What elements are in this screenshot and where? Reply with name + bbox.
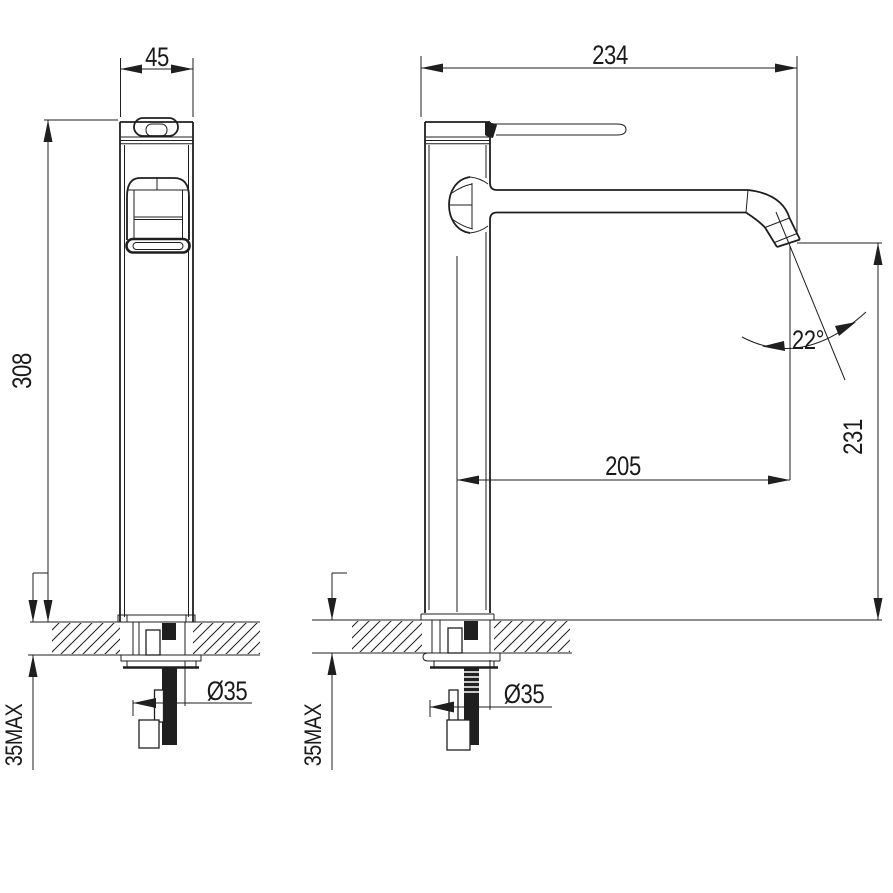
side-spout-joint [449, 177, 488, 233]
front-width-label: 45 [145, 43, 169, 73]
side-dim-reach: 205 [457, 246, 790, 612]
front-counter-section [28, 622, 260, 655]
front-view: 45 308 35MAX Ø35 [0, 43, 260, 770]
front-max-thickness-label: 35MAX [0, 703, 27, 766]
side-dim-spout-height: 231 [797, 243, 883, 620]
side-view: 234 205 231 22° [299, 41, 882, 770]
side-faucet-body [421, 122, 497, 620]
front-spout [127, 178, 190, 253]
side-depth-label: 234 [592, 41, 628, 71]
side-handle-lever [485, 122, 626, 138]
side-angle-label: 22° [792, 326, 824, 356]
side-spout-height-label: 231 [839, 419, 869, 455]
front-dim-hole: Ø35 [133, 661, 252, 716]
side-reach-label: 205 [605, 452, 641, 482]
side-counter-section [312, 620, 882, 653]
side-under-counter-hardware [423, 620, 500, 750]
front-faucet-body [118, 122, 195, 622]
faucet-technical-drawing: 45 308 35MAX Ø35 [0, 0, 893, 893]
front-hole-label: Ø35 [207, 677, 248, 707]
front-threaded-shank [162, 668, 177, 745]
side-hole-label: Ø35 [504, 680, 545, 710]
front-dim-max-thickness: 35MAX [0, 573, 48, 770]
front-mounting-nut [139, 720, 159, 748]
front-height-label: 308 [8, 353, 38, 389]
side-dim-max-thickness: 35MAX [299, 573, 347, 770]
side-max-thickness-label: 35MAX [299, 703, 326, 766]
side-dim-depth: 234 [421, 41, 797, 235]
front-dim-height: 308 [8, 120, 118, 622]
side-lever-hinge [485, 122, 497, 138]
front-under-counter-hardware [121, 622, 201, 748]
front-handle [134, 118, 178, 136]
front-dim-width: 45 [121, 43, 194, 117]
side-spout-arm [497, 190, 800, 247]
side-dim-angle: 22° [742, 212, 866, 380]
drawing-canvas: 45 308 35MAX Ø35 [0, 0, 893, 893]
side-mounting-nut [447, 720, 470, 750]
